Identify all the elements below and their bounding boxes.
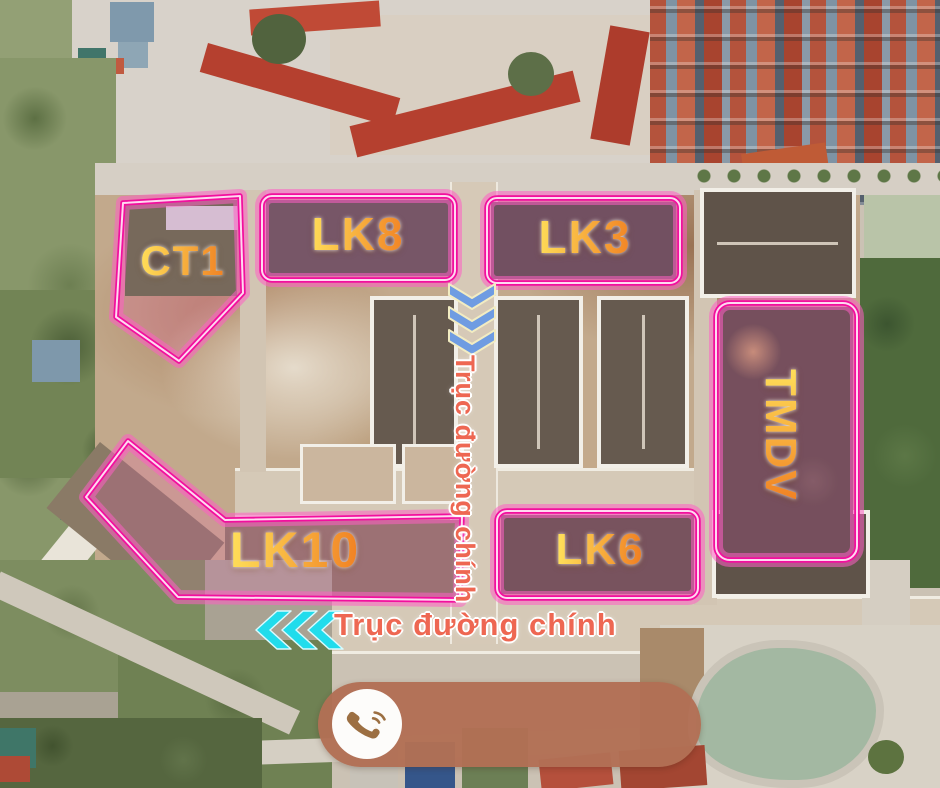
zone-label-lk6: LK6 <box>540 528 660 572</box>
chevron-down-icon <box>449 284 495 355</box>
zone-label-tmdv: TMDV <box>758 338 802 533</box>
zone-label-lk10: LK10 <box>200 525 390 575</box>
main-road-label-horizontal: Trục đường chính <box>334 607 617 643</box>
zone-label-ct1: CT1 <box>120 240 246 282</box>
chevron-left-icon <box>256 611 343 649</box>
phone-icon-circle <box>332 689 402 759</box>
zone-label-lk8: LK8 <box>285 211 431 257</box>
phone-contact-button[interactable] <box>318 682 701 767</box>
phone-icon <box>343 700 391 748</box>
aerial-masterplan-map: CT1 LK8 LK3 TMDV LK10 LK6 Trục đường chí… <box>0 0 940 788</box>
zone-label-lk3: LK3 <box>512 214 658 260</box>
